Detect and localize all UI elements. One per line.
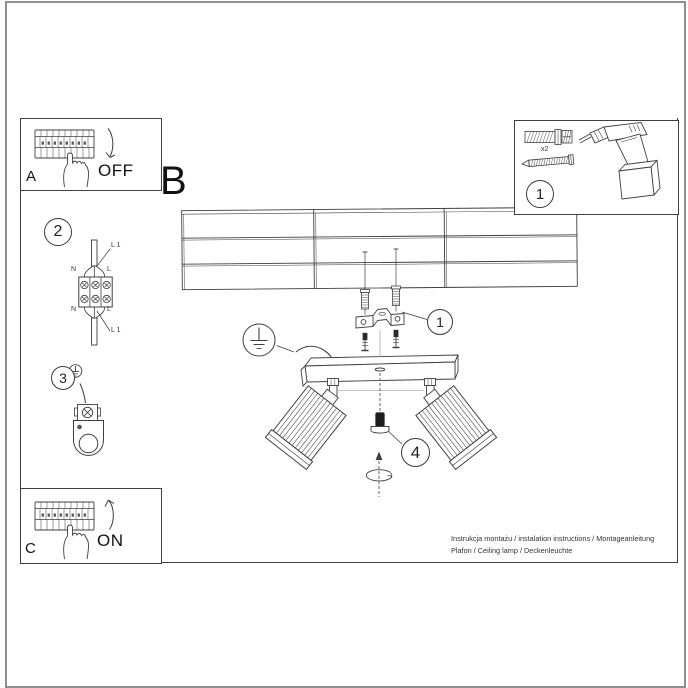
footer-line-instructions: Instrukcja montażu / instalation instruc… [451,533,654,545]
breaker-off-illustration [21,119,159,188]
breaker-panel-icon [35,130,94,158]
step-c-box [20,488,162,564]
spotlight-shade-left [265,378,353,470]
wire-label-n-bottom: N [71,306,76,313]
mounting-screws [362,330,400,351]
arrow-up-icon [105,500,114,530]
arrow-down-icon [106,129,115,158]
wall-plug-icon [525,130,572,145]
wire-label-l-top: L [107,266,111,273]
wire-label-l1-bottom: L 1 [111,327,120,334]
breaker-on-illustration [21,489,159,561]
step-a-label: A [26,169,36,184]
callout-3-ground: 3 [51,366,75,390]
switch-off-label: OFF [98,162,134,179]
mounting-bracket [356,309,404,329]
switch-on-label: ON [97,532,124,549]
adjust-knob [371,373,402,444]
callout-4-adjust: 4 [401,438,430,467]
breaker-panel-icon [35,502,94,530]
earth-ground-icon [243,324,275,356]
wire-label-l-bottom: L [107,306,111,313]
step-b-label: B [160,161,187,201]
footer-title-block: Instrukcja montażu / instalation instruc… [451,533,654,556]
terminal-connector-diagram [79,240,112,345]
step-a-box [20,118,162,191]
screw-icon [522,155,574,169]
drill-icon [579,123,660,200]
instruction-sheet: A OFF B [0,0,688,688]
diagram-artwork [0,0,688,688]
callout-2-connector: 2 [44,218,72,246]
wall-plugs [361,249,401,315]
ceiling-panel [182,207,578,289]
callout-1-tools: 1 [526,180,554,208]
step-c-label: C [25,541,36,556]
wire-label-n-top: N [71,266,76,273]
plug-quantity-label: x2 [541,146,548,153]
callout-line-ground [277,346,295,353]
callout-1-anchor: 1 [427,309,453,335]
footer-line-product: Plafon / Ceiling lamp / Deckenleuchte [451,545,654,557]
callout-line-anchor [402,312,427,320]
wire-label-l1-top: L 1 [111,242,120,249]
rotation-arrow [366,452,392,498]
